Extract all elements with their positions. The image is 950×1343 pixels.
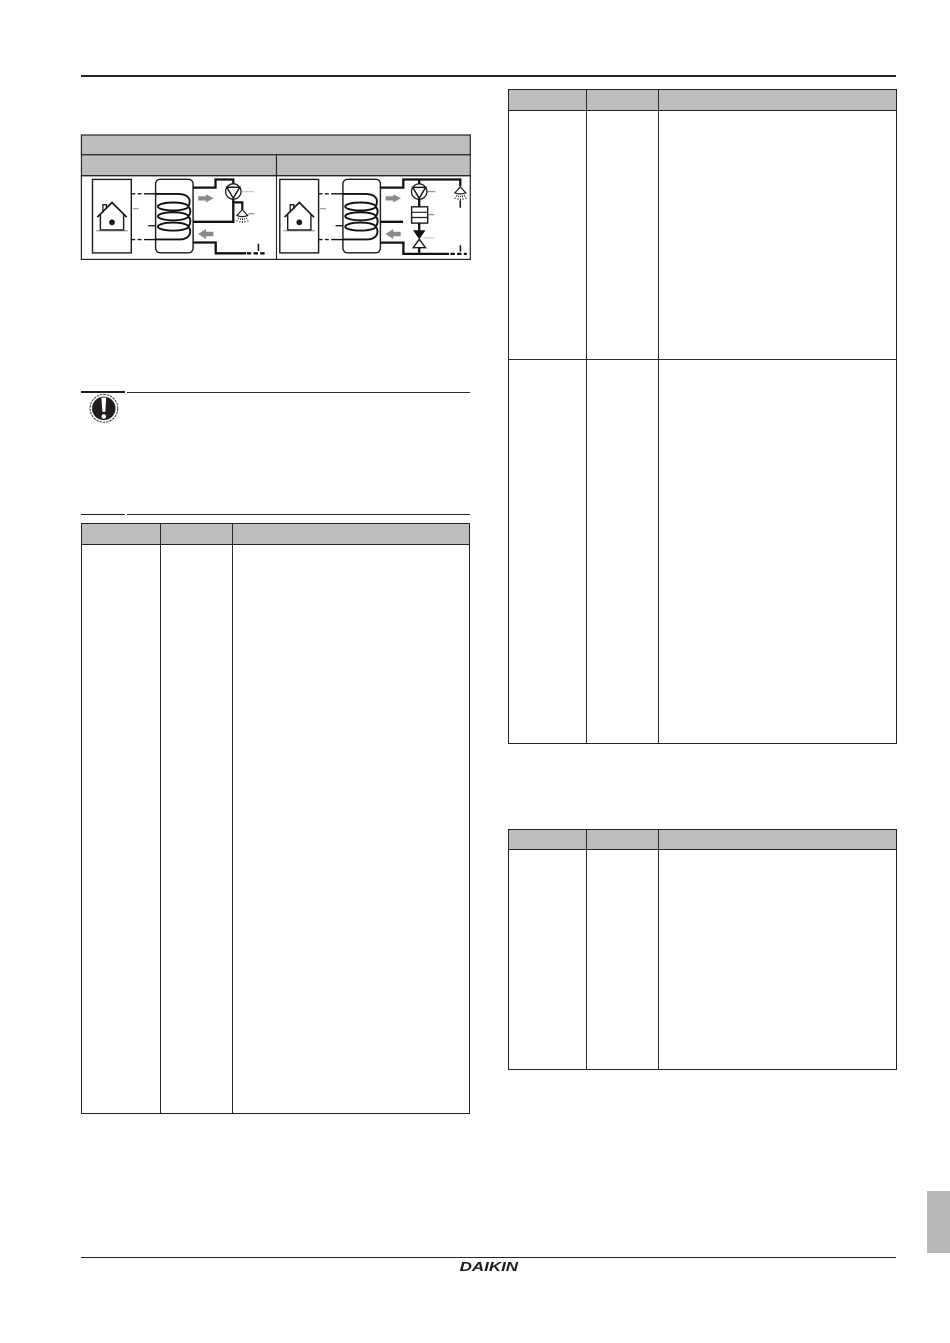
svg-text:DAIKIN: DAIKIN <box>460 1260 520 1274</box>
